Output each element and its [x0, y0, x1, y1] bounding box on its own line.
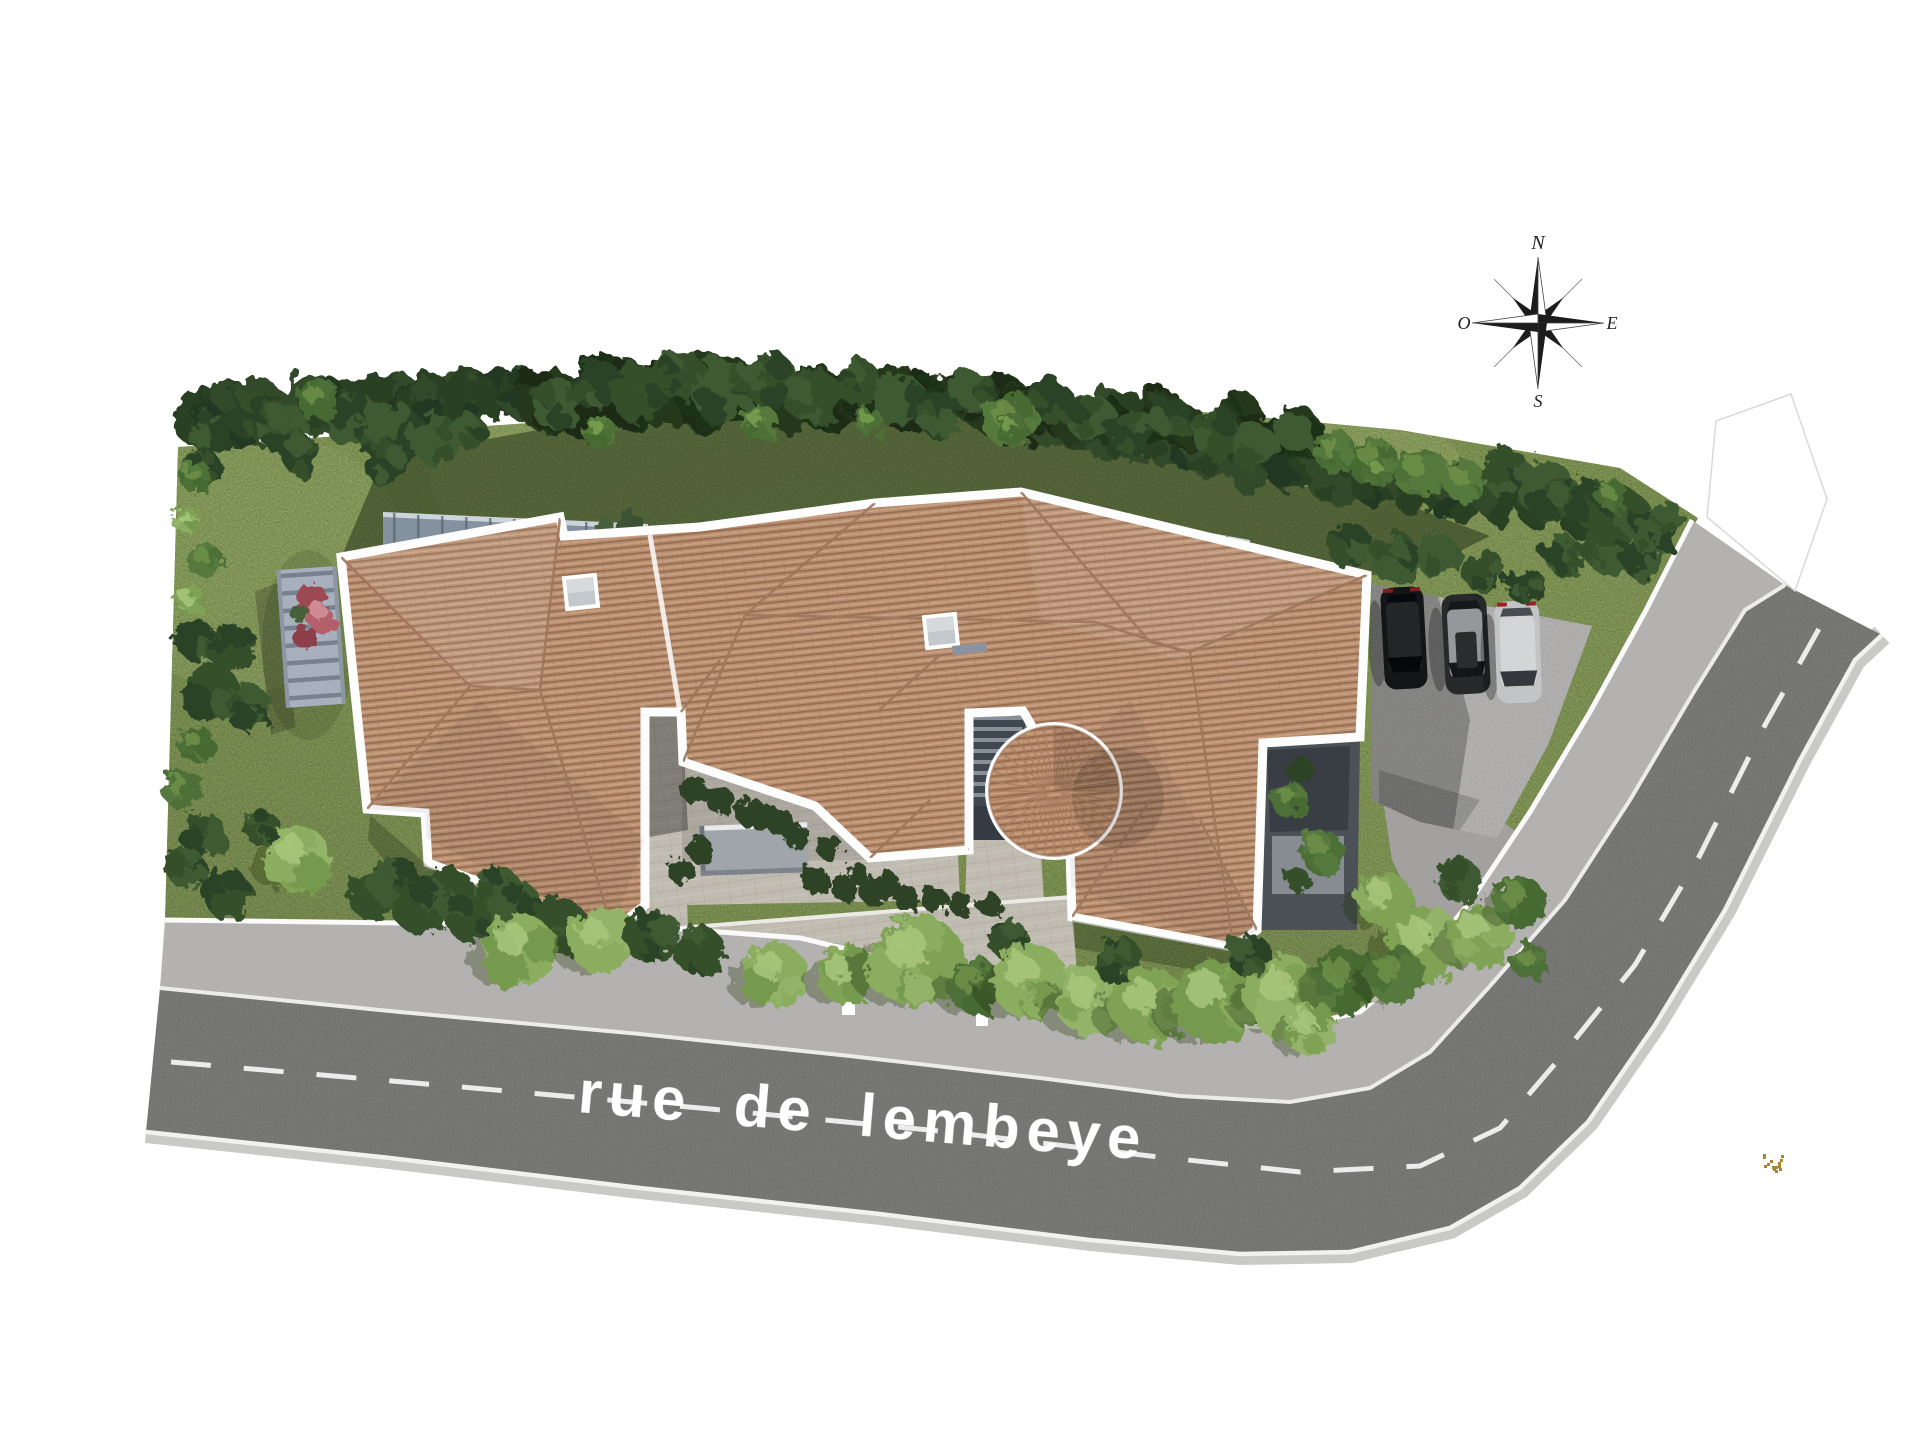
- svg-text:N: N: [1530, 232, 1546, 254]
- svg-text:E: E: [1606, 313, 1618, 333]
- svg-text:O: O: [1458, 313, 1471, 333]
- svg-text:S: S: [1534, 391, 1543, 411]
